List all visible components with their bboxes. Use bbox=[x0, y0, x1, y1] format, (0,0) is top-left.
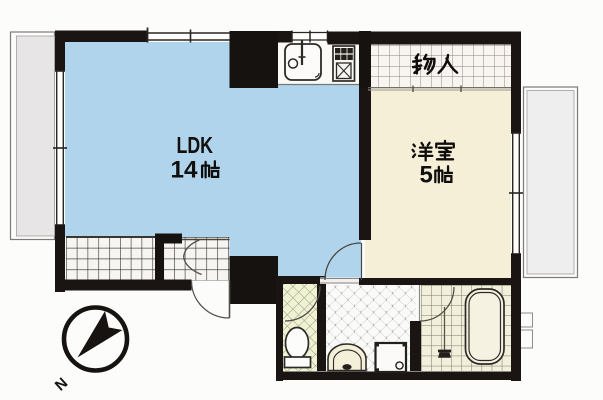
svg-text:LDK: LDK bbox=[177, 132, 214, 158]
svg-text:14: 14 bbox=[171, 157, 199, 184]
svg-text:5: 5 bbox=[420, 162, 433, 189]
